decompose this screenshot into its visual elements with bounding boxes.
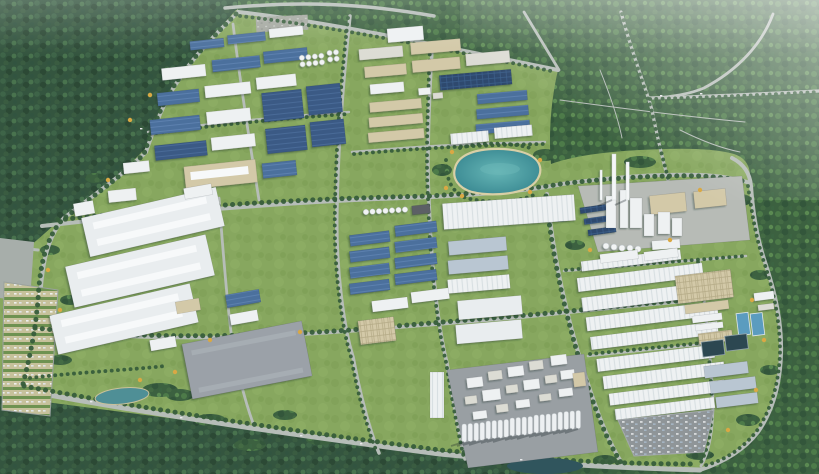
flare-stack: [600, 170, 602, 200]
lake-highlight: [480, 163, 520, 175]
chimney: [612, 154, 616, 200]
building: [262, 160, 297, 178]
building: [261, 89, 304, 122]
treatment-basin: [701, 340, 725, 358]
building: [418, 87, 431, 95]
building-louvered: [358, 317, 397, 345]
process-tower: [644, 214, 654, 236]
building: [433, 92, 443, 99]
building: [123, 160, 150, 174]
building: [108, 188, 137, 203]
building: [430, 372, 444, 418]
building: [310, 119, 346, 147]
treatment-basin: [736, 312, 751, 335]
process-tower: [630, 198, 642, 228]
building: [693, 188, 727, 208]
building: [387, 26, 424, 43]
process-tower: [658, 212, 670, 234]
building: [306, 83, 343, 115]
building: [265, 125, 307, 154]
treatment-basin: [725, 334, 749, 352]
treatment-basin: [750, 313, 765, 336]
viewport: Aerial 3D rendering of a master-planned …: [0, 0, 819, 474]
building: [649, 192, 687, 215]
scene-svg: [0, 0, 819, 474]
building: [412, 204, 431, 215]
chimney: [626, 162, 629, 200]
process-tower: [672, 218, 682, 236]
lake: [454, 149, 540, 194]
